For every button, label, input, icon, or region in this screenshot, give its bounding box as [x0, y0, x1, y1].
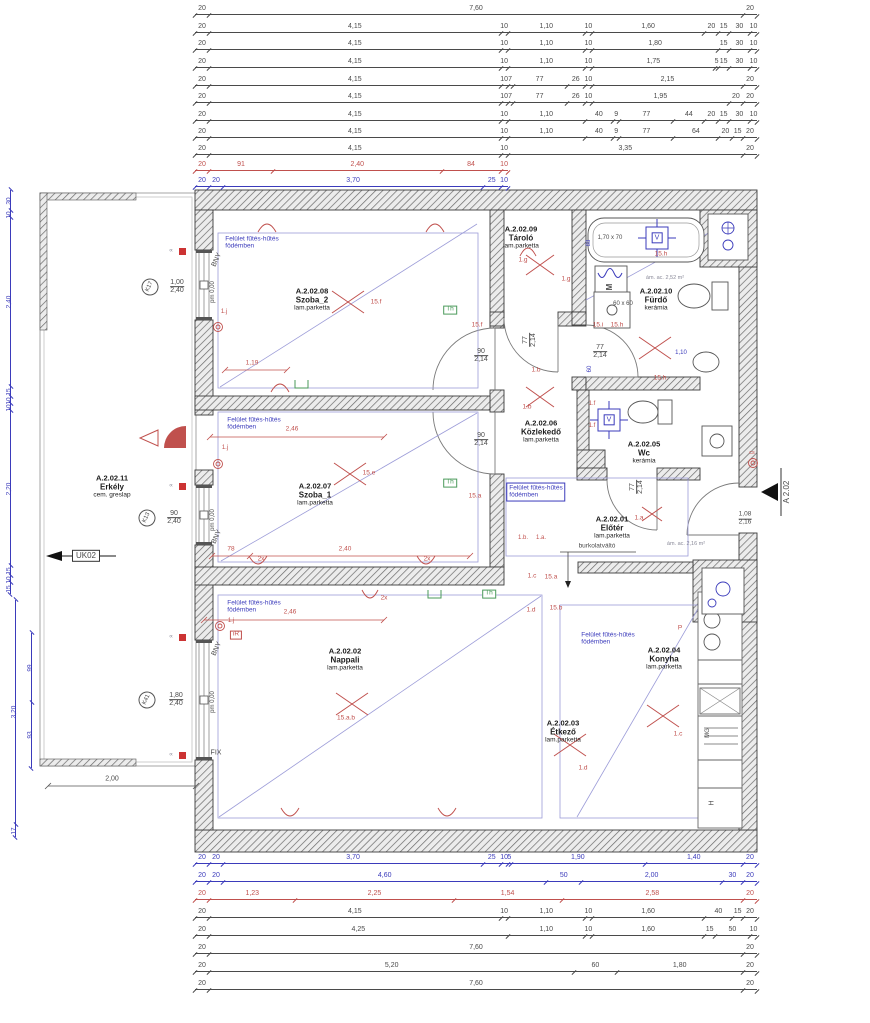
- dim-value: 64: [692, 128, 700, 135]
- plan-label: 2x: [258, 557, 265, 564]
- plan-label: pm 0,00: [210, 281, 216, 303]
- dim-segment: 2,25: [295, 898, 453, 900]
- dim-segment: 1,10: [508, 136, 585, 138]
- dimension-row: 204,15103,3520: [195, 143, 757, 155]
- door-size: 902,14: [474, 348, 488, 364]
- plan-label: 1.f: [589, 401, 596, 407]
- dim-value: 26: [572, 76, 580, 83]
- dim-segment: 4,15: [209, 153, 501, 155]
- dim-value: 10: [585, 40, 593, 47]
- shaft-fixture-mid: [702, 568, 744, 614]
- dimension-row: 20204,60502,003020: [195, 870, 757, 882]
- room-id: A.2.02.10: [640, 287, 673, 296]
- dim-segment: 20: [209, 185, 223, 187]
- dimension-column: 9993: [31, 633, 39, 768]
- dim-value: 5,20: [385, 962, 399, 969]
- plan-label: 1,70 x 70: [598, 235, 623, 241]
- plan-label: ám. ac. 2,16 m²: [667, 542, 705, 548]
- dim-segment: 20: [743, 84, 757, 86]
- room-A.2.02.03: A.2.02.03Étkezőlam.parketta: [545, 719, 581, 744]
- dim-value: 7: [508, 93, 512, 100]
- plan-label: ∝: [169, 634, 173, 640]
- dim-value: 10: [500, 58, 508, 65]
- dim-segment: 20: [743, 862, 757, 864]
- room-id: A.2.02.08: [294, 287, 330, 296]
- dim-segment: 20: [195, 988, 209, 990]
- room-id: A.2.02.09: [503, 225, 539, 234]
- room-finish: lam.parketta: [327, 665, 363, 672]
- dim-value: 3,70: [346, 854, 360, 861]
- dimension-row: 201,232,251,542,5820: [195, 888, 757, 900]
- door-size: 772,14: [522, 333, 538, 347]
- dim-segment: 20: [743, 136, 757, 138]
- section-label-a202: A 2.02: [783, 481, 791, 504]
- dim-value: 1,40: [687, 854, 701, 861]
- dim-segment: 20: [195, 31, 209, 33]
- dim-value: 4,15: [348, 93, 362, 100]
- dim-value: 10: [585, 93, 593, 100]
- room-A.2.02.10: A.2.02.10Fürdőkerámia: [640, 287, 673, 312]
- dim-segment: 20: [195, 934, 209, 936]
- dim-segment: 20: [209, 862, 223, 864]
- plan-label: ∝: [169, 248, 173, 254]
- dim-value: 20: [198, 76, 206, 83]
- dim-segment: 4,25: [209, 934, 508, 936]
- dimension-row: 205,20601,8020: [195, 960, 757, 972]
- dim-segment: 20: [195, 136, 209, 138]
- dim-value: 20: [198, 5, 206, 12]
- dim-segment: 4,15: [209, 31, 501, 33]
- dimension-column: 30102,401510102,20151015: [10, 190, 18, 594]
- dim-value: 77: [536, 93, 544, 100]
- dim-segment: 20: [743, 880, 757, 882]
- dim-segment: 20: [195, 66, 209, 68]
- dim-value: 40: [595, 111, 603, 118]
- dim-segment: 20: [743, 952, 757, 954]
- room-name: Fürdő: [640, 296, 673, 305]
- dim-value: 50: [729, 926, 737, 933]
- room-name: Szoba_2: [294, 296, 330, 305]
- room-finish: lam.parketta: [297, 500, 333, 507]
- room-name: Erkély: [93, 483, 130, 492]
- dim-segment: 7,60: [209, 952, 743, 954]
- dim-segment: 20: [195, 185, 209, 187]
- dim-value: 44: [685, 111, 693, 118]
- dim-value: 10: [750, 926, 758, 933]
- dim-segment: 1,10: [508, 916, 585, 918]
- door-size: 902,14: [474, 432, 488, 448]
- dim-segment: 91: [209, 169, 273, 171]
- dim-segment: 1,80: [592, 48, 718, 50]
- walls: [195, 190, 757, 852]
- room-finish: kerámia: [640, 305, 673, 312]
- room-name: Szoba_1: [297, 491, 333, 500]
- dim-segment: 20: [195, 153, 209, 155]
- dim-value: 20: [746, 5, 754, 12]
- dim-value: 1,75: [647, 58, 661, 65]
- dim-value: 2,20: [6, 482, 13, 495]
- plan-label: 1.j: [222, 445, 228, 451]
- plan-label: 1.g: [518, 258, 527, 265]
- room-id: A.2.02.05: [628, 440, 661, 449]
- plan-label: 15.h: [655, 252, 668, 259]
- plan-label: M: [606, 284, 614, 291]
- dimension-row: 204,15101,10101,6020153010: [195, 21, 757, 33]
- dim-value: 10: [500, 40, 508, 47]
- dim-segment: 25: [483, 185, 501, 187]
- room-A.2.02.01: A.2.02.01Előtérlam.parketta: [594, 515, 630, 540]
- dim-value: 10: [585, 76, 593, 83]
- plan-label: 1.b.: [518, 535, 528, 541]
- plan-label: 15.a: [469, 494, 482, 501]
- plan-label: Th: [443, 306, 457, 315]
- basin-wc: [702, 426, 732, 456]
- dim-segment: 77: [619, 119, 673, 121]
- plan-label: 15.h: [611, 323, 624, 330]
- dim-segment: 1,60: [592, 934, 704, 936]
- dim-value: 99: [27, 664, 34, 671]
- dim-segment: 77: [513, 84, 567, 86]
- dim-value: 50: [560, 872, 568, 879]
- dim-segment: 4,60: [223, 880, 546, 882]
- dim-value: 30: [736, 111, 744, 118]
- dim-segment: 1,10: [508, 934, 585, 936]
- dim-value: 1,95: [654, 93, 668, 100]
- dim-value: 84: [467, 161, 475, 168]
- dim-value: 25: [488, 854, 496, 861]
- plan-label: pm 0,00: [210, 691, 216, 713]
- dim-segment: 20: [195, 880, 209, 882]
- dim-segment: 26: [567, 84, 585, 86]
- dimension-row: 207,6020: [195, 3, 757, 15]
- dim-value: 10: [500, 908, 508, 915]
- room-finish: cem. greslap: [93, 492, 130, 499]
- dim-value: 15: [734, 128, 742, 135]
- dim-segment: 1,95: [592, 101, 729, 103]
- dim-segment: 10: [750, 48, 757, 50]
- plan-label: 15.f: [371, 300, 382, 307]
- dim-segment: 99: [31, 633, 33, 703]
- dim-segment: 2,00: [581, 880, 722, 882]
- dim-segment: 2,40: [10, 218, 12, 387]
- dimension-row: 20912,408410: [195, 159, 508, 171]
- toilet-furdo: [678, 282, 728, 310]
- dim-value: 10: [500, 111, 508, 118]
- room-name: Étkező: [545, 728, 581, 737]
- dim-value: 77: [642, 128, 650, 135]
- room-name: Közlekedő: [521, 428, 561, 437]
- dim-segment: 20: [195, 169, 209, 171]
- dim-value: 30: [6, 197, 13, 204]
- dim-value: 4,15: [348, 908, 362, 915]
- room-A.2.02.08: A.2.02.08Szoba_2lam.parketta: [294, 287, 330, 312]
- plan-label: V: [652, 232, 663, 243]
- dim-segment: 3,20: [15, 600, 17, 825]
- basin-furdo: [693, 352, 719, 372]
- dim-value: 1,54: [501, 890, 515, 897]
- dim-segment: 15: [10, 583, 12, 594]
- dim-value: 3,35: [618, 145, 632, 152]
- shaft-fixture-top: [708, 214, 748, 260]
- dim-value: 20: [746, 908, 754, 915]
- dim-value: 15: [720, 58, 728, 65]
- plan-label: ∝: [169, 483, 173, 489]
- room-A.2.02.02: A.2.02.02Nappalilam.parketta: [327, 647, 363, 672]
- dim-value: 9: [614, 128, 618, 135]
- dim-value: 4,15: [348, 111, 362, 118]
- dim-value: 1,60: [641, 926, 655, 933]
- dim-value: 1,10: [539, 23, 553, 30]
- plan-label: 1.c: [674, 732, 683, 739]
- dim-segment: 20: [195, 916, 209, 918]
- dim-segment: 40: [704, 916, 732, 918]
- dim-segment: 44: [673, 119, 704, 121]
- dim-segment: 3,70: [223, 862, 483, 864]
- dim-segment: 1,60: [592, 31, 704, 33]
- room-finish: lam.parketta: [646, 664, 682, 671]
- dim-value: 20: [746, 872, 754, 879]
- room-id: A.2.02.11: [93, 474, 130, 483]
- dim-value: 4,15: [348, 58, 362, 65]
- room-finish: kerámia: [628, 458, 661, 465]
- dim-value: 20: [198, 944, 206, 951]
- dim-value: 5: [715, 58, 719, 65]
- plan-label: MG: [705, 728, 711, 738]
- dim-segment: 25: [483, 862, 501, 864]
- dim-value: 4,60: [378, 872, 392, 879]
- dim-value: 1,10: [539, 926, 553, 933]
- door-size: 772,14: [629, 480, 645, 494]
- dim-value: 10: [500, 128, 508, 135]
- dim-value: 3,20: [11, 706, 18, 719]
- dim-value: 17: [11, 827, 18, 834]
- plan-label: 2x: [424, 557, 431, 564]
- dim-value: 7: [508, 76, 512, 83]
- room-name: Tároló: [503, 234, 539, 243]
- dim-value: 15: [706, 926, 714, 933]
- dim-value: 20: [198, 161, 206, 168]
- dim-segment: 4,15: [209, 119, 501, 121]
- dimension-row: 20203,702510: [195, 175, 508, 187]
- room-finish: lam.parketta: [594, 533, 630, 540]
- dim-value: 2,00: [645, 872, 659, 879]
- dim-value: 10: [585, 23, 593, 30]
- plan-label: 1.b: [531, 368, 540, 375]
- plan-label: Th: [482, 590, 496, 599]
- balcony-door-symbol: [140, 426, 186, 448]
- dim-value: 15: [720, 23, 728, 30]
- dim-segment: 1,10: [508, 66, 585, 68]
- dimension-row: 204,151077726102,1520: [195, 74, 757, 86]
- dim-segment: 93: [31, 703, 33, 768]
- plan-label: 2,46: [284, 610, 297, 617]
- plan-label: H: [708, 800, 715, 805]
- plan-label: 15.h.: [654, 376, 668, 383]
- dim-value: 10: [500, 93, 508, 100]
- dim-segment: 1,10: [508, 48, 585, 50]
- dim-value: 20: [198, 962, 206, 969]
- dim-segment: 20: [743, 970, 757, 972]
- dim-value: 20: [746, 76, 754, 83]
- dim-segment: 30: [729, 31, 750, 33]
- floor-heating-note: Felület fűtés-hűtésfödémben: [581, 632, 634, 647]
- dim-segment: 20: [195, 952, 209, 954]
- dim-value: 10: [500, 76, 508, 83]
- dim-value: 10: [500, 177, 508, 184]
- plan-label: 15.b: [550, 606, 563, 613]
- dim-segment: 10: [750, 66, 757, 68]
- dim-value: 15: [720, 40, 728, 47]
- room-id: A.2.02.04: [646, 646, 682, 655]
- room-name: Konyha: [646, 655, 682, 664]
- dim-segment: 1,10: [508, 119, 585, 121]
- dim-segment: 30: [10, 190, 12, 211]
- dim-value: 2,25: [368, 890, 382, 897]
- dim-segment: 40: [585, 136, 613, 138]
- dimension-row: 204,15101,10101,60401520: [195, 906, 757, 918]
- plan-label: 1.d: [526, 608, 535, 615]
- plan-label: 1.a.: [536, 535, 546, 541]
- dim-segment: 2,20: [10, 411, 12, 566]
- dim-segment: 1,54: [454, 898, 562, 900]
- dim-segment: 20: [195, 84, 209, 86]
- dim-value: 30: [736, 58, 744, 65]
- dim-segment: 10: [501, 185, 508, 187]
- dim-value: 20: [212, 854, 220, 861]
- dim-value: 1,23: [245, 890, 259, 897]
- dim-segment: 20: [195, 119, 209, 121]
- dim-value: 20: [198, 908, 206, 915]
- dim-value: 20: [198, 111, 206, 118]
- plan-label: pm 0,00: [210, 509, 216, 531]
- floor-heating-note: Felület fűtés-hűtésfödémben: [225, 236, 278, 251]
- toilet-wc: [628, 400, 672, 424]
- dim-segment: 10: [501, 169, 508, 171]
- plan-label: Th: [443, 479, 457, 488]
- dim-value: 4,15: [348, 128, 362, 135]
- plan-label: 2,46: [286, 427, 299, 434]
- dim-segment: 20: [195, 101, 209, 103]
- dim-value: 20: [707, 23, 715, 30]
- dim-segment: 40: [585, 119, 613, 121]
- dim-value: 77: [536, 76, 544, 83]
- dim-value: 20: [198, 980, 206, 987]
- plan-label: 2,40: [339, 547, 352, 554]
- dim-value: 15: [720, 111, 728, 118]
- plan-label: 15.f: [472, 323, 483, 330]
- dim-value: 10: [500, 23, 508, 30]
- dim-segment: 4,15: [209, 66, 501, 68]
- dim-value: 20: [746, 854, 754, 861]
- dimension-row: 204,15101,10101,80153010: [195, 38, 757, 50]
- dim-segment: 20: [195, 48, 209, 50]
- dim-segment: 84: [442, 169, 501, 171]
- entrance-door-size: 1,082,16: [739, 512, 752, 527]
- dim-segment: 1,75: [592, 66, 715, 68]
- dim-value: 40: [595, 128, 603, 135]
- room-A.2.02.07: A.2.02.07Szoba_1lam.parketta: [297, 482, 333, 507]
- dim-segment: 30: [729, 119, 750, 121]
- dim-value: 93: [27, 732, 34, 739]
- dim-segment: 64: [673, 136, 718, 138]
- plan-label: FIX: [211, 749, 222, 756]
- dim-segment: 4,15: [209, 136, 501, 138]
- plan-label: 15.e: [363, 471, 376, 478]
- dim-value: 1,60: [641, 908, 655, 915]
- dim-value: 20: [732, 93, 740, 100]
- dim-value: 10: [750, 58, 758, 65]
- dim-value: 30: [736, 23, 744, 30]
- dim-value: 5: [507, 854, 511, 861]
- dim-value: 20: [212, 872, 220, 879]
- dim-value: 1,60: [641, 23, 655, 30]
- floor-heating-note: Felület fűtés-hűtésfödémben: [506, 483, 565, 502]
- plan-label: 15.a: [545, 575, 558, 582]
- dim-value: 2,58: [646, 890, 660, 897]
- plan-label: 15.a.b: [337, 716, 355, 723]
- dim-segment: 3,35: [508, 153, 743, 155]
- dim-value: 20: [198, 872, 206, 879]
- dim-segment: 20: [195, 970, 209, 972]
- dim-segment: 20: [195, 13, 209, 15]
- dim-value: 1,10: [539, 111, 553, 118]
- plan-label: V: [604, 414, 615, 425]
- dimension-row: 204,15101,10101,755153010: [195, 56, 757, 68]
- dim-value: 10: [500, 161, 508, 168]
- dim-value: 4,25: [352, 926, 366, 933]
- dim-value: 20: [198, 128, 206, 135]
- window-size: 1,002,40: [170, 279, 184, 295]
- room-A.2.02.11: A.2.02.11Erkélycem. greslap: [93, 474, 130, 499]
- dim-value: 20: [198, 23, 206, 30]
- dim-value: 4,15: [348, 40, 362, 47]
- dim-segment: 77: [513, 101, 567, 103]
- dim-value: 25: [488, 177, 496, 184]
- dim-value: 20: [746, 980, 754, 987]
- dim-value: 26: [572, 93, 580, 100]
- dim-segment: 50: [546, 880, 581, 882]
- dim-value: 10: [750, 23, 758, 30]
- dim-value: 2,15: [661, 76, 675, 83]
- plan-label: 1,10: [675, 350, 687, 356]
- dim-segment: 77: [619, 136, 673, 138]
- dim-value: 1,80: [648, 40, 662, 47]
- dim-segment: 20: [195, 862, 209, 864]
- plan-label: 1.c: [528, 574, 537, 581]
- dim-segment: 10: [750, 31, 757, 33]
- dim-value: 10: [750, 111, 758, 118]
- room-finish: lam.parketta: [521, 437, 561, 444]
- dim-value: 7,60: [469, 5, 483, 12]
- window-size: 902,40: [167, 510, 181, 526]
- plan-label: 1.g: [561, 277, 570, 284]
- dim-segment: 30: [729, 66, 750, 68]
- plan-label: cs: [749, 451, 755, 457]
- dim-segment: 2,15: [592, 84, 743, 86]
- dim-segment: 1,80: [617, 970, 743, 972]
- room-id: A.2.02.06: [521, 419, 561, 428]
- room-A.2.02.05: A.2.02.05Wckerámia: [628, 440, 661, 465]
- door-size: 772,14: [593, 344, 607, 360]
- room-finish: lam.parketta: [294, 305, 330, 312]
- dim-value: 2,40: [6, 296, 13, 309]
- dim-value: 20: [746, 962, 754, 969]
- window-size: 1,802,40: [169, 692, 183, 708]
- dim-segment: 1,23: [209, 898, 295, 900]
- dim-segment: 50: [715, 934, 750, 936]
- dim-value: 40: [714, 908, 722, 915]
- room-A.2.02.04: A.2.02.04Konyhalam.parketta: [646, 646, 682, 671]
